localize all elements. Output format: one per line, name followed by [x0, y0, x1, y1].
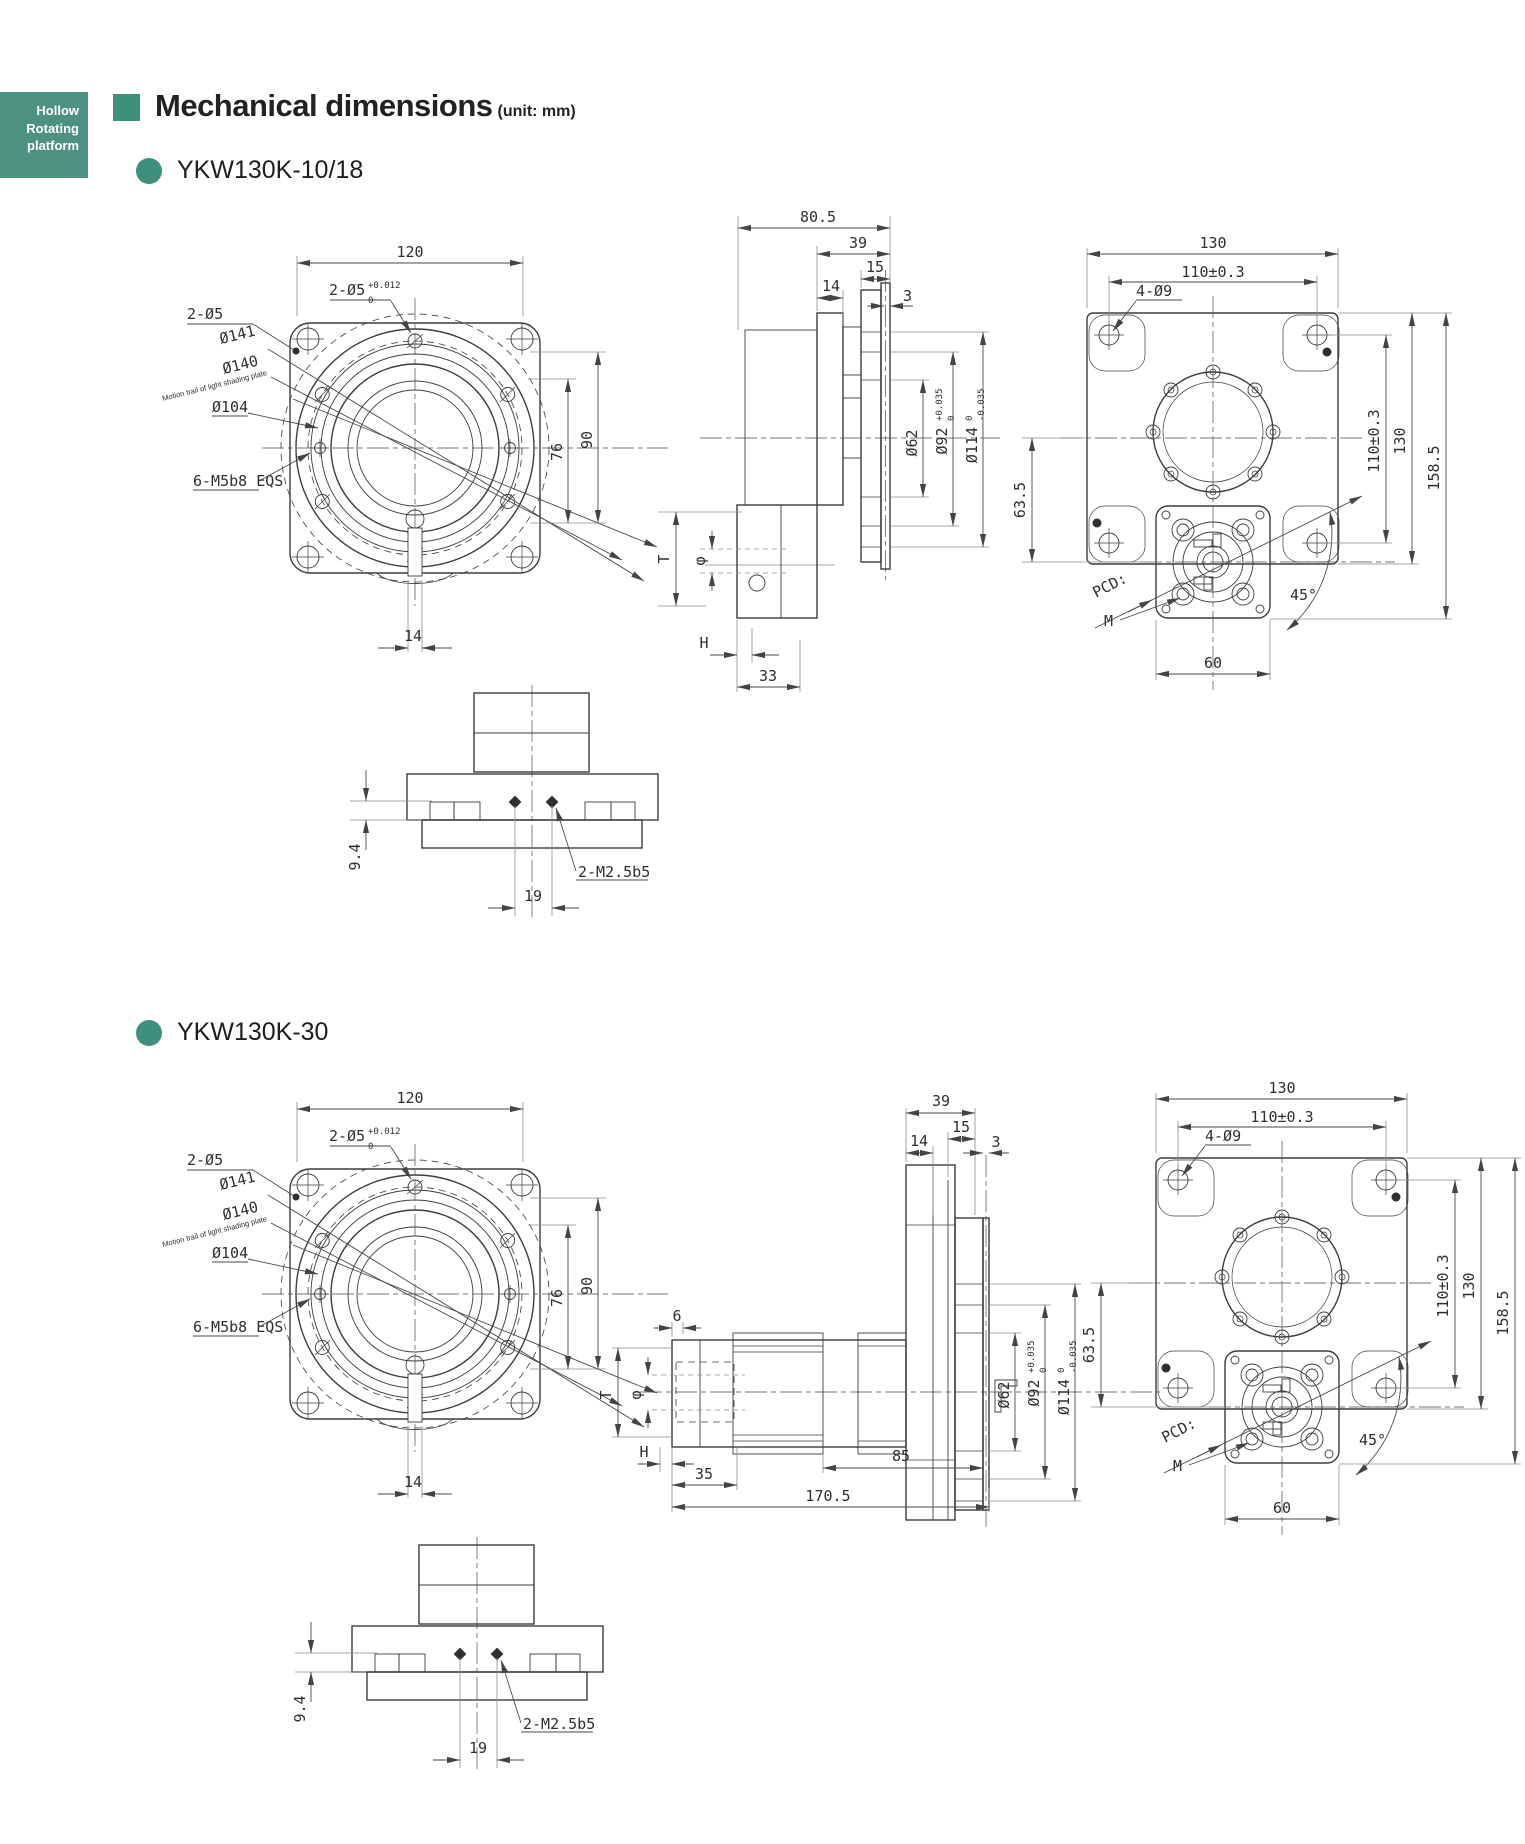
- dim-label: 3: [903, 287, 912, 305]
- dim-label: 9.4: [291, 1695, 309, 1722]
- dim-label: 6: [672, 1307, 681, 1325]
- dia-callout: Ø104: [212, 1244, 248, 1262]
- dim-label: 130: [1460, 1272, 1478, 1299]
- view-bottom-ykw130k-30: 9.4 19 2-M2.5b5: [291, 1537, 603, 1772]
- dim-label: 15: [866, 258, 884, 276]
- dim-label: 14: [404, 627, 422, 645]
- bottom-view-geometry: [350, 685, 658, 920]
- dim-label: 110±0.3: [1434, 1254, 1452, 1317]
- tolerance-sub: 0: [947, 416, 957, 421]
- view-back-ykw130k-10-18: 130 110±0.3 4-Ø9 63.5 110±0.3 130 158.5 …: [1011, 234, 1452, 690]
- dim-label: 110±0.3: [1365, 409, 1383, 472]
- dim-label: 80.5: [800, 208, 836, 226]
- dim-label: 14: [822, 277, 840, 295]
- dim-label: 90: [578, 431, 596, 449]
- tolerance-sup: 0: [1057, 1368, 1067, 1373]
- dia-dim-label: Ø62: [995, 1381, 1013, 1408]
- dim-label: 76: [548, 443, 566, 461]
- tolerance-sub: -0.035: [977, 388, 987, 421]
- dim-label: 130: [1391, 427, 1409, 454]
- m-label: M: [1104, 612, 1113, 630]
- view-back-ykw130k-30: 130 110±0.3 4-Ø9 63.5 110±0.3 130 158.5 …: [1080, 1079, 1521, 1535]
- dim-label: 14: [404, 1473, 422, 1491]
- dia-callout: Ø141: [218, 322, 257, 348]
- dim-label: 19: [524, 887, 542, 905]
- dim-label: 39: [849, 234, 867, 252]
- tolerance-sup: 0: [965, 416, 975, 421]
- back-view-geometry: [1091, 1093, 1521, 1535]
- hole-callout: 2-Ø5: [187, 1151, 223, 1169]
- dim-label: 15: [952, 1118, 970, 1136]
- tolerance-sub: 0: [368, 296, 373, 306]
- view-front-ykw130k-30: 120 2-Ø5 +0.012 0 2-Ø5 Ø141 Ø140 Motion …: [161, 1089, 668, 1498]
- hole-callout: 2-Ø5: [329, 1127, 365, 1145]
- pcd-label: PCD:: [1159, 1414, 1199, 1446]
- dim-label: T: [655, 554, 673, 563]
- dim-label: 158.5: [1494, 1290, 1512, 1335]
- thread-callout: 2-M2.5b5: [523, 1715, 595, 1733]
- pcd-label: PCD:: [1090, 569, 1130, 601]
- dim-label: 110±0.3: [1250, 1108, 1313, 1126]
- dim-label: H: [699, 634, 708, 652]
- dim-label: 35: [695, 1465, 713, 1483]
- view-bottom-ykw130k-10-18: 9.4 19 2-M2.5b5: [346, 685, 658, 920]
- tolerance-sup: +0.012: [368, 281, 401, 291]
- dim-label: φ: [627, 1390, 645, 1399]
- tolerance-sub: 0: [368, 1142, 373, 1152]
- dim-label: 90: [578, 1277, 596, 1295]
- view-side-ykw130k-10-18: 80.5 39 14 15 3 Ø62 Ø92 +0.035 0 Ø114 0 …: [655, 208, 1000, 692]
- dim-label: 63.5: [1080, 1327, 1098, 1363]
- dim-label: 120: [396, 1089, 423, 1107]
- screw-callout: 6-M5b8 EQS: [193, 472, 283, 490]
- dim-label: 130: [1199, 234, 1226, 252]
- m-label: M: [1173, 1457, 1182, 1475]
- bottom-view-geometry: [295, 1537, 603, 1772]
- dim-label: 14: [910, 1132, 928, 1150]
- dim-label: 120: [396, 243, 423, 261]
- dia-dim-label: Ø114: [1055, 1379, 1073, 1415]
- dim-label: H: [639, 1443, 648, 1461]
- dim-label: φ: [691, 556, 709, 565]
- back-view-geometry: [1022, 248, 1452, 690]
- dia-dim-label: Ø92: [1025, 1379, 1043, 1406]
- view-front-ykw130k-10-18: 120 2-Ø5 +0.012 0 2-Ø5 Ø141 Ø140 Motion …: [161, 243, 668, 652]
- dim-label: 130: [1268, 1079, 1295, 1097]
- tolerance-sub: 0: [1039, 1368, 1049, 1373]
- dia-callout: Ø104: [212, 398, 248, 416]
- dim-label: 3: [991, 1133, 1000, 1151]
- tolerance-sup: +0.035: [935, 388, 945, 421]
- dim-label: 76: [548, 1289, 566, 1307]
- tolerance-sup: +0.012: [368, 1127, 401, 1137]
- dim-label: 85: [892, 1447, 910, 1465]
- dia-callout: Ø141: [218, 1168, 257, 1194]
- dim-label: 63.5: [1011, 482, 1029, 518]
- screw-callout: 6-M5b8 EQS: [193, 1318, 283, 1336]
- dim-label: 19: [469, 1739, 487, 1757]
- tolerance-sub: -0.035: [1069, 1340, 1079, 1373]
- front-view-geometry: [187, 256, 668, 652]
- hole-callout: 2-Ø5: [187, 305, 223, 323]
- dim-label: T: [597, 1390, 615, 1399]
- dim-label: 158.5: [1425, 445, 1443, 490]
- view-side-ykw130k-30: 39 15 14 3 6 Ø62 Ø92 +0.035 0 Ø114 0 -0.…: [597, 1092, 1160, 1530]
- dim-label: 39: [932, 1092, 950, 1110]
- hole-callout: 4-Ø9: [1136, 282, 1172, 300]
- hole-callout: 4-Ø9: [1205, 1127, 1241, 1145]
- dia-dim-label: Ø92: [933, 427, 951, 454]
- hole-callout: 2-Ø5: [329, 281, 365, 299]
- drawing-canvas: 120 2-Ø5 +0.012 0 2-Ø5 Ø141 Ø140 Motion …: [0, 0, 1525, 1844]
- dia-dim-label: Ø62: [903, 429, 921, 456]
- dim-label: 170.5: [805, 1487, 850, 1505]
- angle-label: 45°: [1359, 1431, 1386, 1449]
- front-view-geometry: [187, 1102, 668, 1498]
- dim-label: 33: [759, 667, 777, 685]
- dim-label: 60: [1204, 654, 1222, 672]
- tolerance-sup: +0.035: [1027, 1340, 1037, 1373]
- thread-callout: 2-M2.5b5: [578, 863, 650, 881]
- dim-label: 110±0.3: [1181, 263, 1244, 281]
- dim-label: 9.4: [346, 843, 364, 870]
- dim-label: 60: [1273, 1499, 1291, 1517]
- dia-dim-label: Ø114: [963, 427, 981, 463]
- angle-label: 45°: [1290, 586, 1317, 604]
